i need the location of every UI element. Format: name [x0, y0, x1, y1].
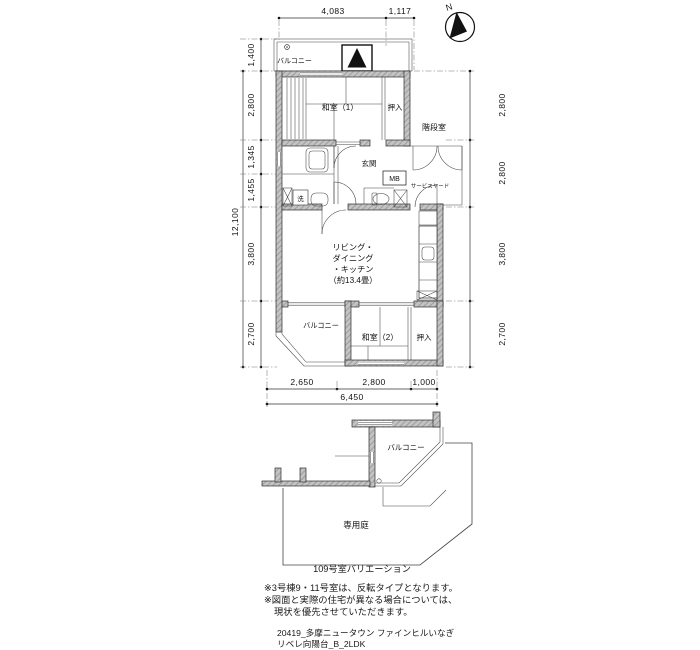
balcony-top-label: バルコニー — [277, 57, 312, 65]
note-line-3: 現状を優先させていただきます。 — [274, 606, 413, 617]
balcony-mid-railing: バルコニー — [276, 321, 345, 366]
dim-bottom-3: 1,000 — [412, 377, 435, 387]
balcony-mid-label: バルコニー — [303, 321, 339, 330]
genkan-label: 玄関 — [362, 158, 377, 168]
fridge-space — [419, 211, 437, 225]
footer-line-2: リベレ向陽台_B_2LDK — [277, 638, 366, 649]
ldk-label-4: （約13.4畳） — [329, 275, 378, 285]
laundry-label: 洗 — [297, 194, 304, 203]
washitsu2-label: 和室（2） — [362, 332, 398, 342]
dim-bottom-total: 6,450 — [340, 392, 363, 402]
ldk-label-1: リビング・ — [333, 242, 374, 252]
balcony-lower-label: バルコニー — [387, 443, 424, 452]
north-compass-icon: N — [444, 1, 474, 41]
garden-steps — [383, 487, 446, 506]
oshiire2-label: 押入 — [417, 332, 432, 342]
ldk-label-3: ・キッチン — [333, 265, 374, 274]
genkan-area: 洗 MB 玄関 — [282, 146, 407, 207]
variation-caption: 109号室バリエーション — [313, 563, 411, 574]
balcony-top: バルコニー — [274, 39, 412, 71]
right-dimensions: 2,800 2,800 3,800 2,700 — [414, 70, 507, 369]
dim-left-1: 1,400 — [246, 43, 256, 66]
ldk-label-2: ダイニング — [333, 253, 374, 263]
dim-bottom-2: 2,800 — [362, 377, 385, 387]
footer-line-1: 20419_多摩ニュータウン ファインヒルいなぎ — [277, 627, 455, 638]
dim-top-1: 4,083 — [321, 6, 344, 16]
dim-right-4: 2,700 — [497, 322, 507, 345]
note-line-2: ※図面と実際の住宅が異なる場合については、 — [264, 594, 457, 605]
mb-label: MB — [389, 176, 400, 183]
dim-right-2: 2,800 — [497, 161, 507, 184]
dim-right-1: 2,800 — [497, 93, 507, 116]
note-line-1: ※3号棟9・11号室は、反転タイプとなります。 — [264, 582, 458, 593]
service-yard-label: サービスヤード — [411, 182, 450, 190]
dim-left-2: 2,800 — [246, 93, 256, 116]
floor-plan-page: N 4,083 1,117 12,100 1,400 2,800 1,345 1… — [0, 0, 700, 650]
bathtub — [306, 148, 328, 172]
left-dimensions: 12,100 1,400 2,800 1,345 1,455 3,800 2,7… — [230, 38, 277, 369]
dim-bottom-1: 2,650 — [290, 377, 313, 387]
stairwell-label: 階段室 — [422, 122, 446, 132]
unit-walls — [276, 71, 443, 366]
washitsu1-label: 和室（1） — [322, 102, 358, 112]
footer-title: 20419_多摩ニュータウン ファインヒルいなぎ リベレ向陽台_B_2LDK — [277, 627, 455, 649]
dim-right-3: 3,800 — [497, 242, 507, 265]
floor-plan-svg: N 4,083 1,117 12,100 1,400 2,800 1,345 1… — [0, 0, 700, 650]
stairwell-area: 階段室 サービスヤード — [410, 122, 462, 207]
washitsu1-room: 和室（1） 押入 — [287, 77, 403, 140]
dim-left-4: 1,455 — [246, 178, 256, 201]
dim-left-total: 12,100 — [230, 208, 240, 236]
bottom-dimensions: 2,650 2,800 1,000 6,450 — [266, 370, 439, 407]
washitsu2-room: 和室（2） 押入 — [351, 307, 432, 360]
garden-label: 専用庭 — [343, 520, 369, 530]
oshiire1-label: 押入 — [388, 102, 403, 112]
dim-left-5: 3,800 — [246, 242, 256, 265]
garden-boundary — [283, 443, 472, 565]
compass-n-label: N — [444, 1, 453, 13]
notes: ※3号棟9・11号室は、反転タイプとなります。 ※図面と実際の住宅が異なる場合に… — [264, 582, 458, 617]
ldk-room: リビング・ ダイニング ・キッチン （約13.4畳） — [322, 210, 437, 300]
drain-icon — [377, 479, 381, 483]
lower-plan: バルコニー 専用庭 — [262, 412, 472, 565]
dim-top-2: 1,117 — [389, 6, 412, 16]
dim-left-6: 2,700 — [246, 322, 256, 345]
dim-left-3: 1,345 — [246, 145, 256, 168]
toilet — [373, 194, 389, 205]
